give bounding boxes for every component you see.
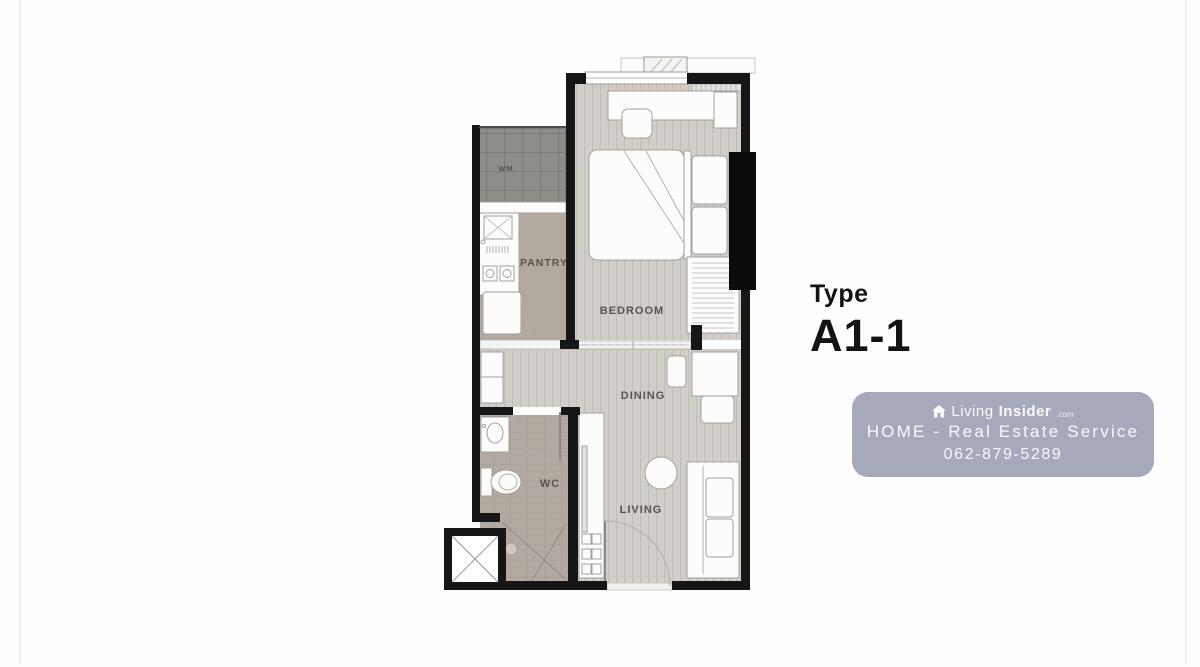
dining-table <box>692 352 738 396</box>
desk-side-unit <box>714 92 737 128</box>
shower-drain <box>505 543 517 555</box>
unit-type-code: A1-1 <box>810 313 912 358</box>
watermark-phone: 062-879-5289 <box>944 445 1063 465</box>
ac-ledge <box>621 58 755 73</box>
bed <box>589 150 684 260</box>
label-bedroom: BEDROOM <box>600 305 664 317</box>
label-pantry: PANTRY <box>520 257 568 269</box>
watermark-logo-row: LivingInsider.com <box>932 404 1073 419</box>
entrance-threshold <box>607 583 672 590</box>
toilet-tank <box>481 468 492 496</box>
brand-tld: .com <box>1056 411 1073 419</box>
label-wc: WC <box>540 478 560 490</box>
faucet <box>481 240 485 244</box>
page-frame-line-right <box>1185 0 1187 664</box>
hob-burner <box>483 266 497 281</box>
bed-headboard <box>684 151 691 259</box>
watermark-service-line: HOME - Real Estate Service <box>867 421 1140 442</box>
sofa-cushion <box>706 478 733 517</box>
watermark-badge: LivingInsider.com HOME - Real Estate Ser… <box>852 392 1154 477</box>
coffee-table <box>645 457 677 489</box>
page-frame-line-left <box>19 0 21 664</box>
hob-burner <box>500 266 514 281</box>
pillow <box>692 207 727 254</box>
dining-chair <box>701 396 734 423</box>
pillow <box>692 156 727 204</box>
tv <box>582 446 587 532</box>
service-shaft <box>444 528 506 590</box>
label-dining: DINING <box>621 390 666 402</box>
balcony-door-panel <box>729 152 756 290</box>
label-wm: WM <box>498 164 513 173</box>
bedroom-window <box>585 72 688 84</box>
console-drawers <box>582 534 601 574</box>
brand-insider: Insider <box>999 404 1052 419</box>
sofa-cushion <box>706 519 733 557</box>
floorplan-page: WM PANTRY BEDROOM DINING WC LIVING Type … <box>0 0 1200 667</box>
vent-strip <box>692 84 743 91</box>
dining-chair <box>667 356 686 387</box>
bathroom-sink <box>481 417 509 452</box>
desk-chair <box>622 109 652 138</box>
counter-edge <box>479 202 566 213</box>
brand-living: Living <box>951 404 993 419</box>
house-icon <box>932 405 946 418</box>
label-living: LIVING <box>620 504 663 516</box>
wm-floor <box>479 128 566 204</box>
unit-type-block: Type A1-1 <box>810 281 912 358</box>
floorplan-drawing: WM PANTRY BEDROOM DINING WC LIVING <box>440 50 760 595</box>
fridge <box>483 292 521 334</box>
unit-type-label: Type <box>810 281 912 309</box>
sink-tap <box>483 425 486 428</box>
